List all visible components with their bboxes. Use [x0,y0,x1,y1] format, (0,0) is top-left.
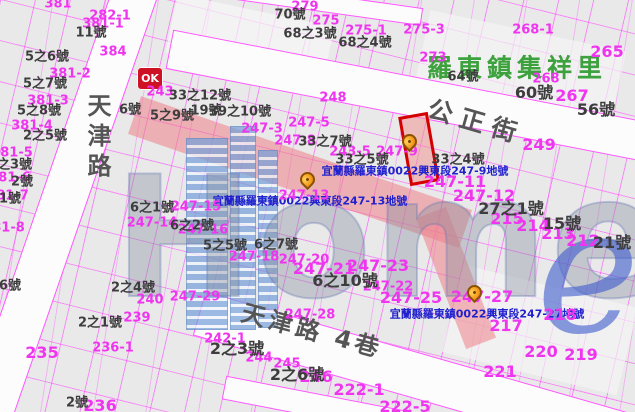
house-number-label: 6之7號 [254,239,298,252]
parcel-number-label: 236-1 [92,342,134,355]
house-number-label: 33之12號 [169,90,231,103]
house-number-label: 6號 [0,280,21,293]
house-number-label: 27之1號 [478,201,543,217]
parcel-number-label: 249 [522,137,555,153]
house-number-label: 2之6號 [270,367,324,383]
parcel-number-label: 248 [319,92,346,105]
parcel-number-label: 222-1 [333,382,384,398]
house-number-label: 2之3號 [210,341,264,357]
parcel-number-label: 247-13 [279,190,330,203]
parcel-number-label: 275-3 [403,24,445,37]
house-number-label: 39之10號 [209,106,271,119]
house-number-label: 64號 [447,71,478,84]
parcel-number-label: 217 [489,318,522,334]
parcel-number-label: 265 [590,44,623,60]
parcel-number-label: 218 [543,307,576,323]
house-number-label: 33之4號 [431,154,484,167]
house-number-label: 70號 [274,9,305,22]
house-number-label: 60號 [515,85,553,101]
parcel-number-label: 247-5 [288,117,330,130]
house-number-label: 68之4號 [338,37,391,50]
parcel-number-label: 247-25 [380,290,442,306]
house-number-label: 33之5號 [335,154,388,167]
parcel-number-label: 247-28 [285,309,336,322]
parcel-number-label: 221 [483,364,516,380]
house-number-label: 68之3號 [283,28,336,41]
parcel-number-label: 222-5 [379,399,430,412]
parcel-number-label: 220 [524,344,557,360]
house-number-label: 2之4號 [111,282,155,295]
parcel-number-label: 219 [564,347,597,363]
house-number-label: 2號 [11,176,33,189]
parcel-number-label: 235 [25,345,58,361]
house-number-label: 21號 [593,235,631,251]
house-number-label: 5之5號 [203,240,247,253]
house-number-label: 5之6號 [25,51,69,64]
house-number-label: 33之7號 [298,136,351,149]
house-number-label: 6之2號 [170,220,214,233]
parcel-number-label: 273 [419,52,446,65]
house-number-label: 2之1號 [78,317,122,330]
parcel-number-label: 247-15 [171,201,222,214]
house-number-label: 5之8號 [17,105,61,118]
house-number-label: 5之7號 [23,78,67,91]
house-number-label: 5之3號 [0,159,32,172]
house-number-label: 2之5號 [23,130,67,143]
house-number-label: 56號 [577,102,615,118]
parcel-number-label: 282-1 [89,10,131,23]
parcel-number-label: 381-8 [0,222,25,235]
parcel-number-label: 247-29 [170,291,221,304]
house-number-label: 6號 [119,104,141,117]
house-number-label: 6之10號 [312,273,377,289]
parcel-number-label: 268-1 [512,24,554,37]
house-number-label: 1號 [0,193,21,206]
parcel-number-label: 384 [99,46,126,59]
house-number-label: 15號 [543,216,581,232]
parcel-number-label: 381 [44,0,71,11]
house-number-label: 6之1號 [130,202,174,215]
map-canvas[interactable]: Home e OK 天津路公正街天津路 4巷羅東鎮集祥里宜蘭縣羅東鎮0022興東… [0,0,635,412]
parcel-number-label: 236 [83,398,116,412]
street-name-label: 天津路 [85,93,109,183]
house-number-label: 2號 [66,397,88,410]
house-number-label: 5之9號 [150,110,194,123]
parcel-number-label: 239 [123,312,150,325]
house-number-label: 11號 [75,27,106,40]
